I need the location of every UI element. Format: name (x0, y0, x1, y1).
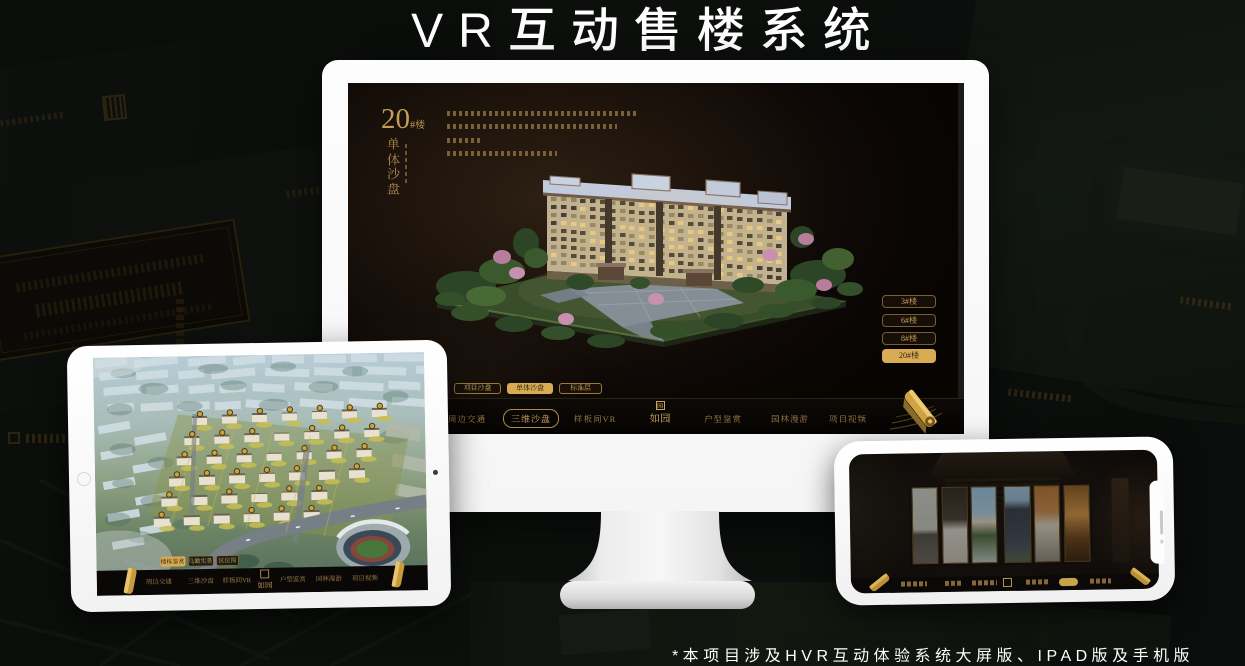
svg-text:样板间VR: 样板间VR (222, 575, 251, 585)
svg-text:园林漫游: 园林漫游 (316, 574, 343, 583)
svg-text:楼栋鉴赏: 楼栋鉴赏 (160, 556, 184, 565)
svg-text:周边交通: 周边交通 (146, 577, 173, 586)
svg-text:鸟瞰实景: 鸟瞰实景 (188, 556, 212, 565)
svg-text:区位图: 区位图 (218, 555, 236, 564)
svg-text:三维沙盘: 三维沙盘 (188, 576, 215, 585)
svg-text:项目视频: 项目视频 (352, 573, 379, 582)
svg-text:户型鉴赏: 户型鉴赏 (280, 574, 307, 583)
svg-text:如园: 如园 (256, 580, 273, 591)
